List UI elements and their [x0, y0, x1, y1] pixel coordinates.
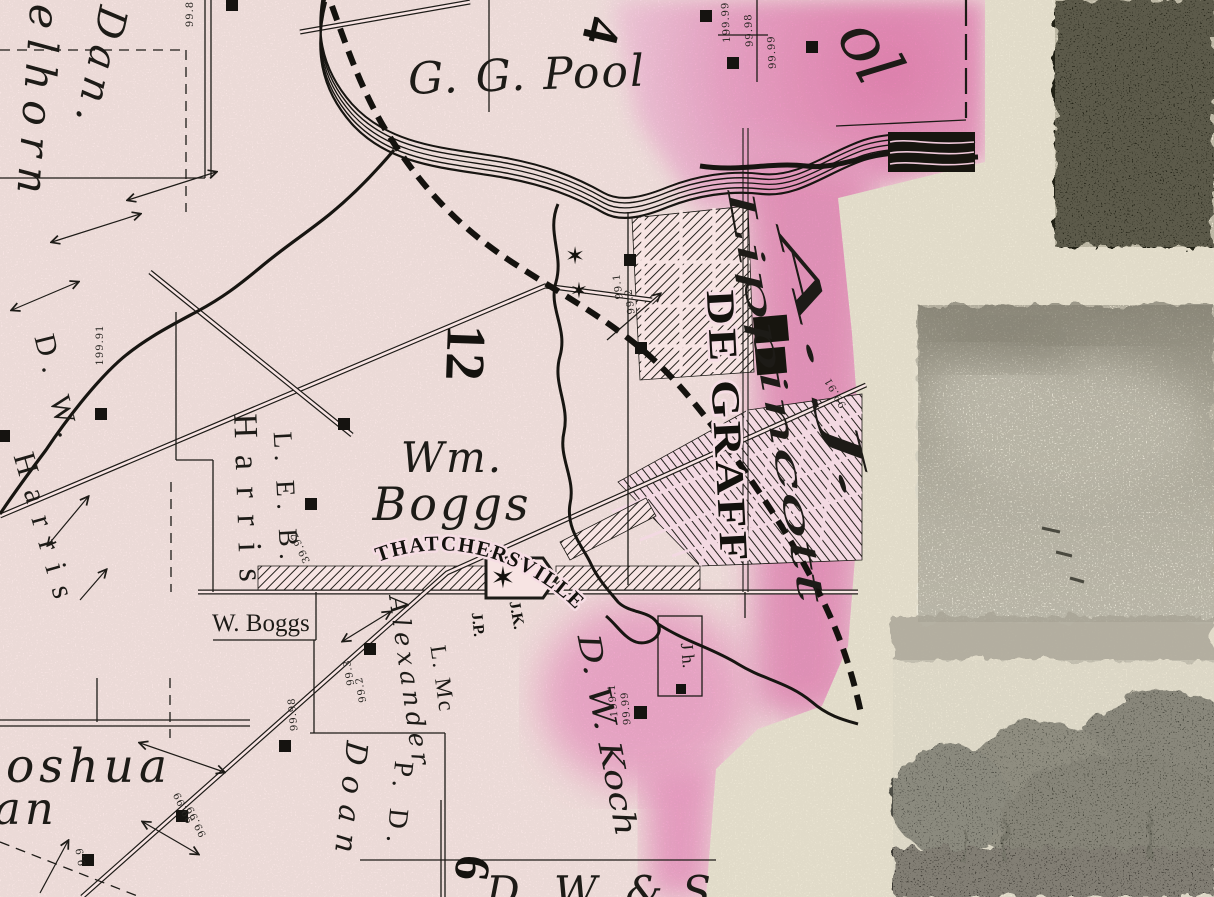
house-symbol — [305, 498, 317, 510]
owner-label-gg-pool: G. G. Pool — [407, 46, 647, 105]
owner-label-an: an — [0, 782, 58, 835]
star-icon: ✶ — [565, 244, 585, 270]
atlas-map-scan: ✶ ✶ ✶ G. G. Pool ol Dan. elhorn A. J. Li… — [0, 0, 1214, 897]
house-symbol — [806, 41, 818, 53]
house-symbol — [0, 430, 10, 442]
acreage-label: 99.98 — [743, 13, 756, 47]
sky-grain — [918, 305, 1214, 622]
house-symbol — [624, 254, 636, 266]
acreage-label: 199.91 — [95, 325, 106, 366]
vignette-sky — [918, 305, 1214, 622]
trees-grain — [893, 660, 1214, 897]
treeline-top-band — [893, 616, 1214, 660]
house-symbol — [727, 57, 739, 69]
vignette-dark-foliage — [1055, 0, 1214, 247]
star-icon: ✶ — [570, 278, 588, 303]
owner-label-dw-and-s: D. W. & S — [485, 867, 714, 897]
dark-vignette-grain — [1055, 0, 1214, 247]
owner-label-jp: J.P. — [468, 612, 487, 638]
house-symbol — [700, 10, 712, 22]
owner-label-boggs: Boggs — [372, 477, 532, 531]
house-symbol — [635, 342, 647, 354]
vignette-trees — [890, 616, 1214, 897]
acreage-label: 99.8 — [185, 1, 196, 27]
owner-label-wm: Wm. — [401, 433, 503, 482]
acreage-label: 199.99 — [720, 1, 733, 43]
house-symbol — [95, 408, 107, 420]
house-symbol — [338, 418, 350, 430]
section-number-12: 12 — [433, 324, 497, 382]
owner-label-jh: J h. — [677, 642, 699, 669]
house-symbol — [634, 706, 647, 719]
owner-label-w-boggs: W. Boggs — [212, 610, 310, 637]
map-canvas: ✶ ✶ ✶ G. G. Pool ol Dan. elhorn A. J. Li… — [0, 0, 1214, 897]
acreage-label: 99.99 — [766, 35, 779, 69]
house-symbol — [676, 684, 686, 694]
house-symbol — [364, 643, 376, 655]
house-symbol — [226, 0, 238, 11]
house-symbol — [279, 740, 291, 752]
